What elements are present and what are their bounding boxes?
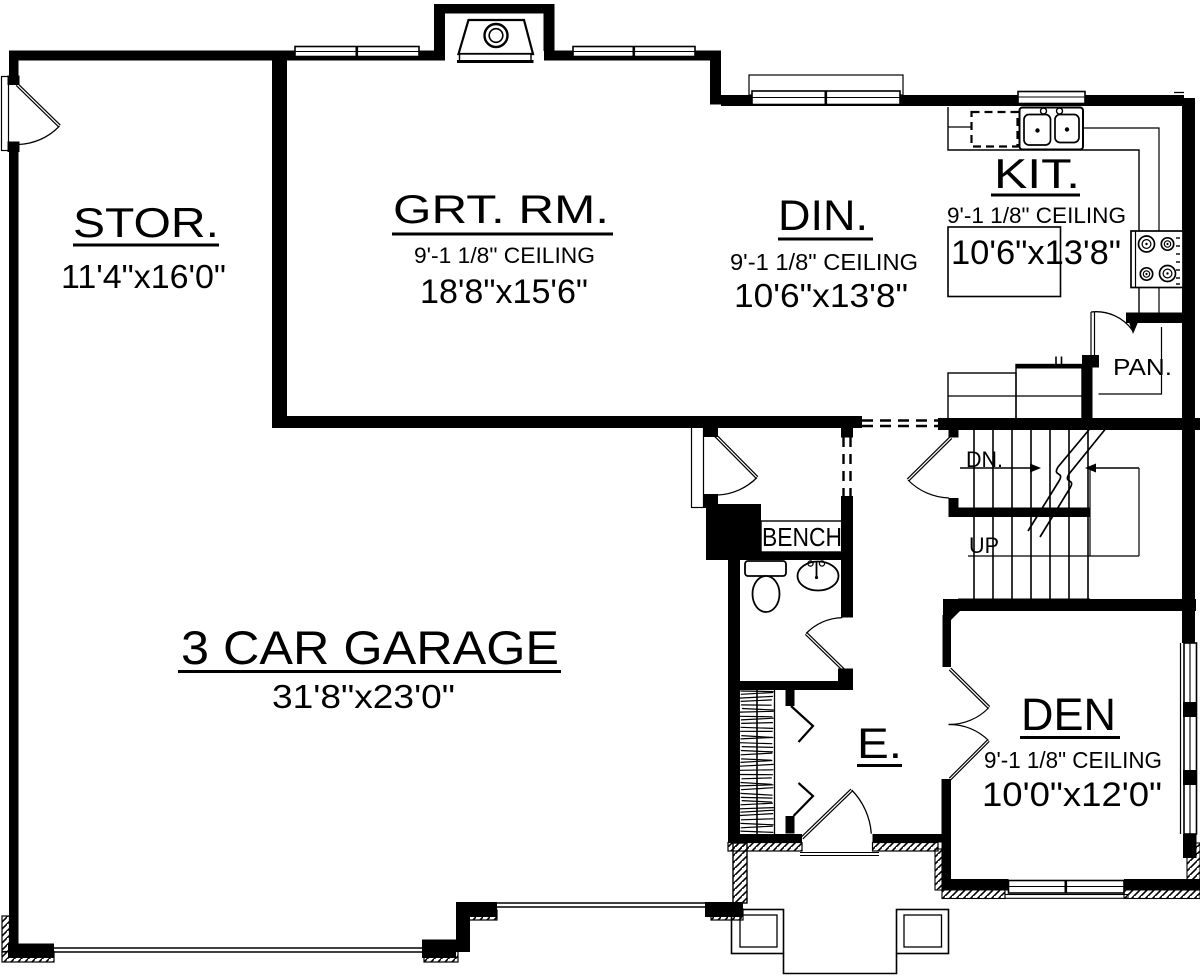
svg-text:10'6"x13'8": 10'6"x13'8" xyxy=(951,234,1121,272)
svg-text:GRT. RM.: GRT. RM. xyxy=(393,188,609,232)
svg-text:9'-1 1/8" CEILING: 9'-1 1/8" CEILING xyxy=(414,243,595,268)
svg-text:31'8"x23'0": 31'8"x23'0" xyxy=(272,678,455,715)
svg-text:9'-1 1/8" CEILING: 9'-1 1/8" CEILING xyxy=(730,249,918,275)
svg-text:UP: UP xyxy=(969,533,999,558)
svg-text:STOR.: STOR. xyxy=(73,199,219,246)
svg-text:10'6"x13'8": 10'6"x13'8" xyxy=(734,277,908,314)
svg-text:11'4"x16'0": 11'4"x16'0" xyxy=(61,258,226,295)
svg-text:KIT.: KIT. xyxy=(994,150,1080,197)
svg-text:10'0"x12'0": 10'0"x12'0" xyxy=(982,776,1162,814)
svg-text:PAN.: PAN. xyxy=(1113,354,1172,380)
svg-text:9'-1 1/8" CEILING: 9'-1 1/8" CEILING xyxy=(947,203,1126,228)
svg-text:DIN.: DIN. xyxy=(778,192,868,240)
svg-text:9'-1 1/8" CEILING: 9'-1 1/8" CEILING xyxy=(984,747,1162,773)
svg-text:3 CAR GARAGE: 3 CAR GARAGE xyxy=(181,621,559,674)
svg-text:DEN: DEN xyxy=(1021,689,1116,740)
svg-text:DN.: DN. xyxy=(966,447,1003,472)
svg-text:18'8"x15'6": 18'8"x15'6" xyxy=(420,273,588,311)
svg-text:BENCH: BENCH xyxy=(762,522,842,552)
svg-text:E.: E. xyxy=(857,720,902,768)
